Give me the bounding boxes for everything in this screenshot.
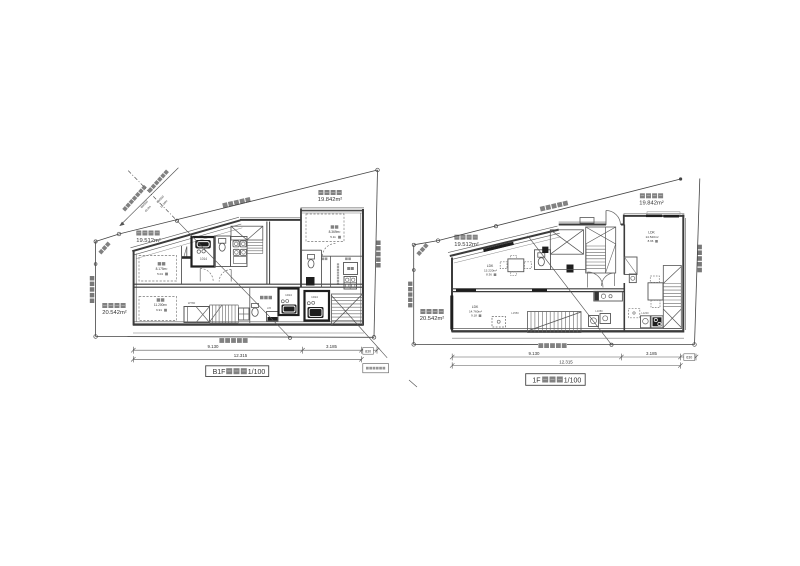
svg-text:L1550: L1550	[511, 311, 519, 315]
svg-text:5.11: 5.11	[330, 235, 336, 239]
svg-text:5.04: 5.04	[157, 272, 163, 276]
svg-text:11.200m²: 11.200m²	[154, 303, 167, 307]
svg-text:8.36: 8.36	[486, 273, 492, 277]
svg-text:1/100: 1/100	[248, 369, 266, 376]
svg-text:19.512m²: 19.512m²	[454, 242, 479, 248]
svg-text:L05: L05	[267, 307, 272, 310]
svg-text:19.842m²: 19.842m²	[639, 200, 664, 206]
svg-text:3.185: 3.185	[646, 351, 658, 356]
svg-text:1F: 1F	[532, 377, 540, 384]
svg-text:630: 630	[686, 356, 692, 360]
svg-text:9.18: 9.18	[471, 314, 477, 318]
svg-text:20.542m²: 20.542m²	[420, 316, 445, 322]
svg-text:L1200: L1200	[641, 311, 649, 315]
svg-text:19.842m²: 19.842m²	[318, 197, 343, 203]
svg-text:12.315: 12.315	[559, 359, 573, 364]
svg-text:LDK: LDK	[487, 264, 494, 268]
svg-text:8.175m²: 8.175m²	[156, 267, 168, 271]
svg-text:B1F: B1F	[213, 369, 226, 376]
svg-text:9.130: 9.130	[208, 344, 220, 349]
svg-text:12.315: 12.315	[234, 353, 248, 358]
svg-text:20.542m²: 20.542m²	[102, 310, 127, 316]
svg-text:1014: 1014	[311, 295, 318, 299]
svg-text:W780: W780	[188, 301, 196, 305]
svg-text:9.130: 9.130	[529, 351, 541, 356]
svg-text:6.91: 6.91	[156, 308, 162, 312]
svg-text:LDK: LDK	[472, 305, 479, 309]
svg-text:3.185: 3.185	[326, 344, 338, 349]
svg-text:LDK: LDK	[648, 230, 655, 234]
svg-text:1014: 1014	[285, 293, 292, 297]
svg-text:1/100: 1/100	[564, 377, 582, 384]
svg-text:L1050: L1050	[595, 309, 603, 313]
svg-text:1014: 1014	[200, 257, 207, 261]
svg-text:8.96: 8.96	[648, 239, 654, 243]
svg-text:8.369m²: 8.369m²	[329, 230, 341, 234]
svg-text:830: 830	[365, 349, 371, 353]
